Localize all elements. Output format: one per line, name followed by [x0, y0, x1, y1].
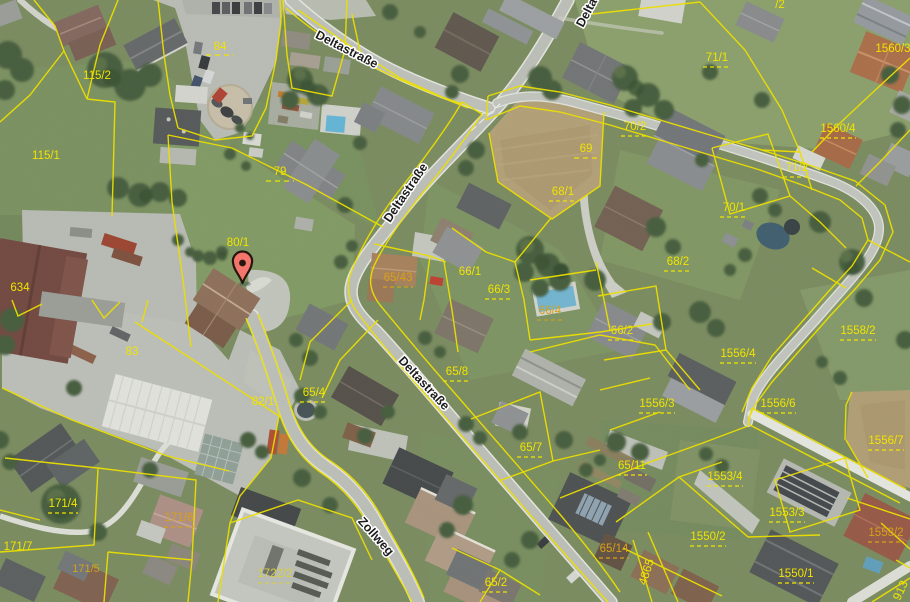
svg-text:1560/4: 1560/4 — [820, 123, 856, 135]
svg-text:171/6: 171/6 — [165, 512, 194, 524]
svg-text:65/11: 65/11 — [618, 460, 646, 472]
svg-text:115/2: 115/2 — [83, 70, 111, 82]
svg-text:66/3: 66/3 — [488, 284, 510, 296]
svg-text:65/43: 65/43 — [384, 272, 413, 284]
svg-text:84: 84 — [214, 41, 227, 53]
svg-text:65/14: 65/14 — [600, 543, 629, 555]
svg-text:82/1: 82/1 — [252, 396, 274, 408]
svg-text:68/2: 68/2 — [667, 256, 689, 268]
svg-text:71/2: 71/2 — [786, 162, 808, 174]
svg-text:70/1: 70/1 — [723, 202, 745, 214]
svg-text:1556/4: 1556/4 — [720, 348, 756, 360]
svg-text:1560/3: 1560/3 — [875, 43, 910, 55]
svg-text:1553/2: 1553/2 — [868, 527, 903, 539]
svg-text:1550/2: 1550/2 — [690, 531, 725, 543]
svg-text:1553/3: 1553/3 — [769, 507, 804, 519]
svg-text:634: 634 — [10, 282, 30, 294]
svg-text:1722/2: 1722/2 — [257, 568, 292, 580]
svg-text:/2: /2 — [775, 0, 785, 11]
svg-text:171/4: 171/4 — [49, 498, 78, 510]
svg-text:69: 69 — [580, 143, 593, 155]
svg-text:1550/1: 1550/1 — [778, 568, 813, 580]
svg-text:66/4: 66/4 — [539, 305, 562, 317]
svg-text:83: 83 — [126, 346, 139, 358]
svg-text:1556/6: 1556/6 — [760, 398, 795, 410]
svg-text:171/5: 171/5 — [72, 563, 100, 575]
svg-text:1556/3: 1556/3 — [639, 398, 674, 410]
svg-text:115/1: 115/1 — [32, 150, 60, 162]
svg-text:66/1: 66/1 — [459, 266, 481, 278]
svg-text:65/2: 65/2 — [485, 577, 507, 589]
svg-text:1558/2: 1558/2 — [840, 325, 875, 337]
svg-text:80/1: 80/1 — [227, 237, 249, 249]
svg-text:68/1: 68/1 — [552, 186, 574, 198]
svg-text:65/7: 65/7 — [520, 442, 542, 454]
svg-text:171/7: 171/7 — [4, 541, 33, 553]
svg-text:71/1: 71/1 — [706, 52, 728, 64]
svg-text:1556/7: 1556/7 — [868, 435, 903, 447]
svg-text:65/4: 65/4 — [303, 387, 326, 399]
svg-text:66/2: 66/2 — [611, 325, 633, 337]
svg-text:70/2: 70/2 — [624, 121, 646, 133]
svg-text:65/8: 65/8 — [446, 366, 468, 378]
svg-text:79: 79 — [274, 166, 287, 178]
svg-text:1553/4: 1553/4 — [707, 471, 743, 483]
